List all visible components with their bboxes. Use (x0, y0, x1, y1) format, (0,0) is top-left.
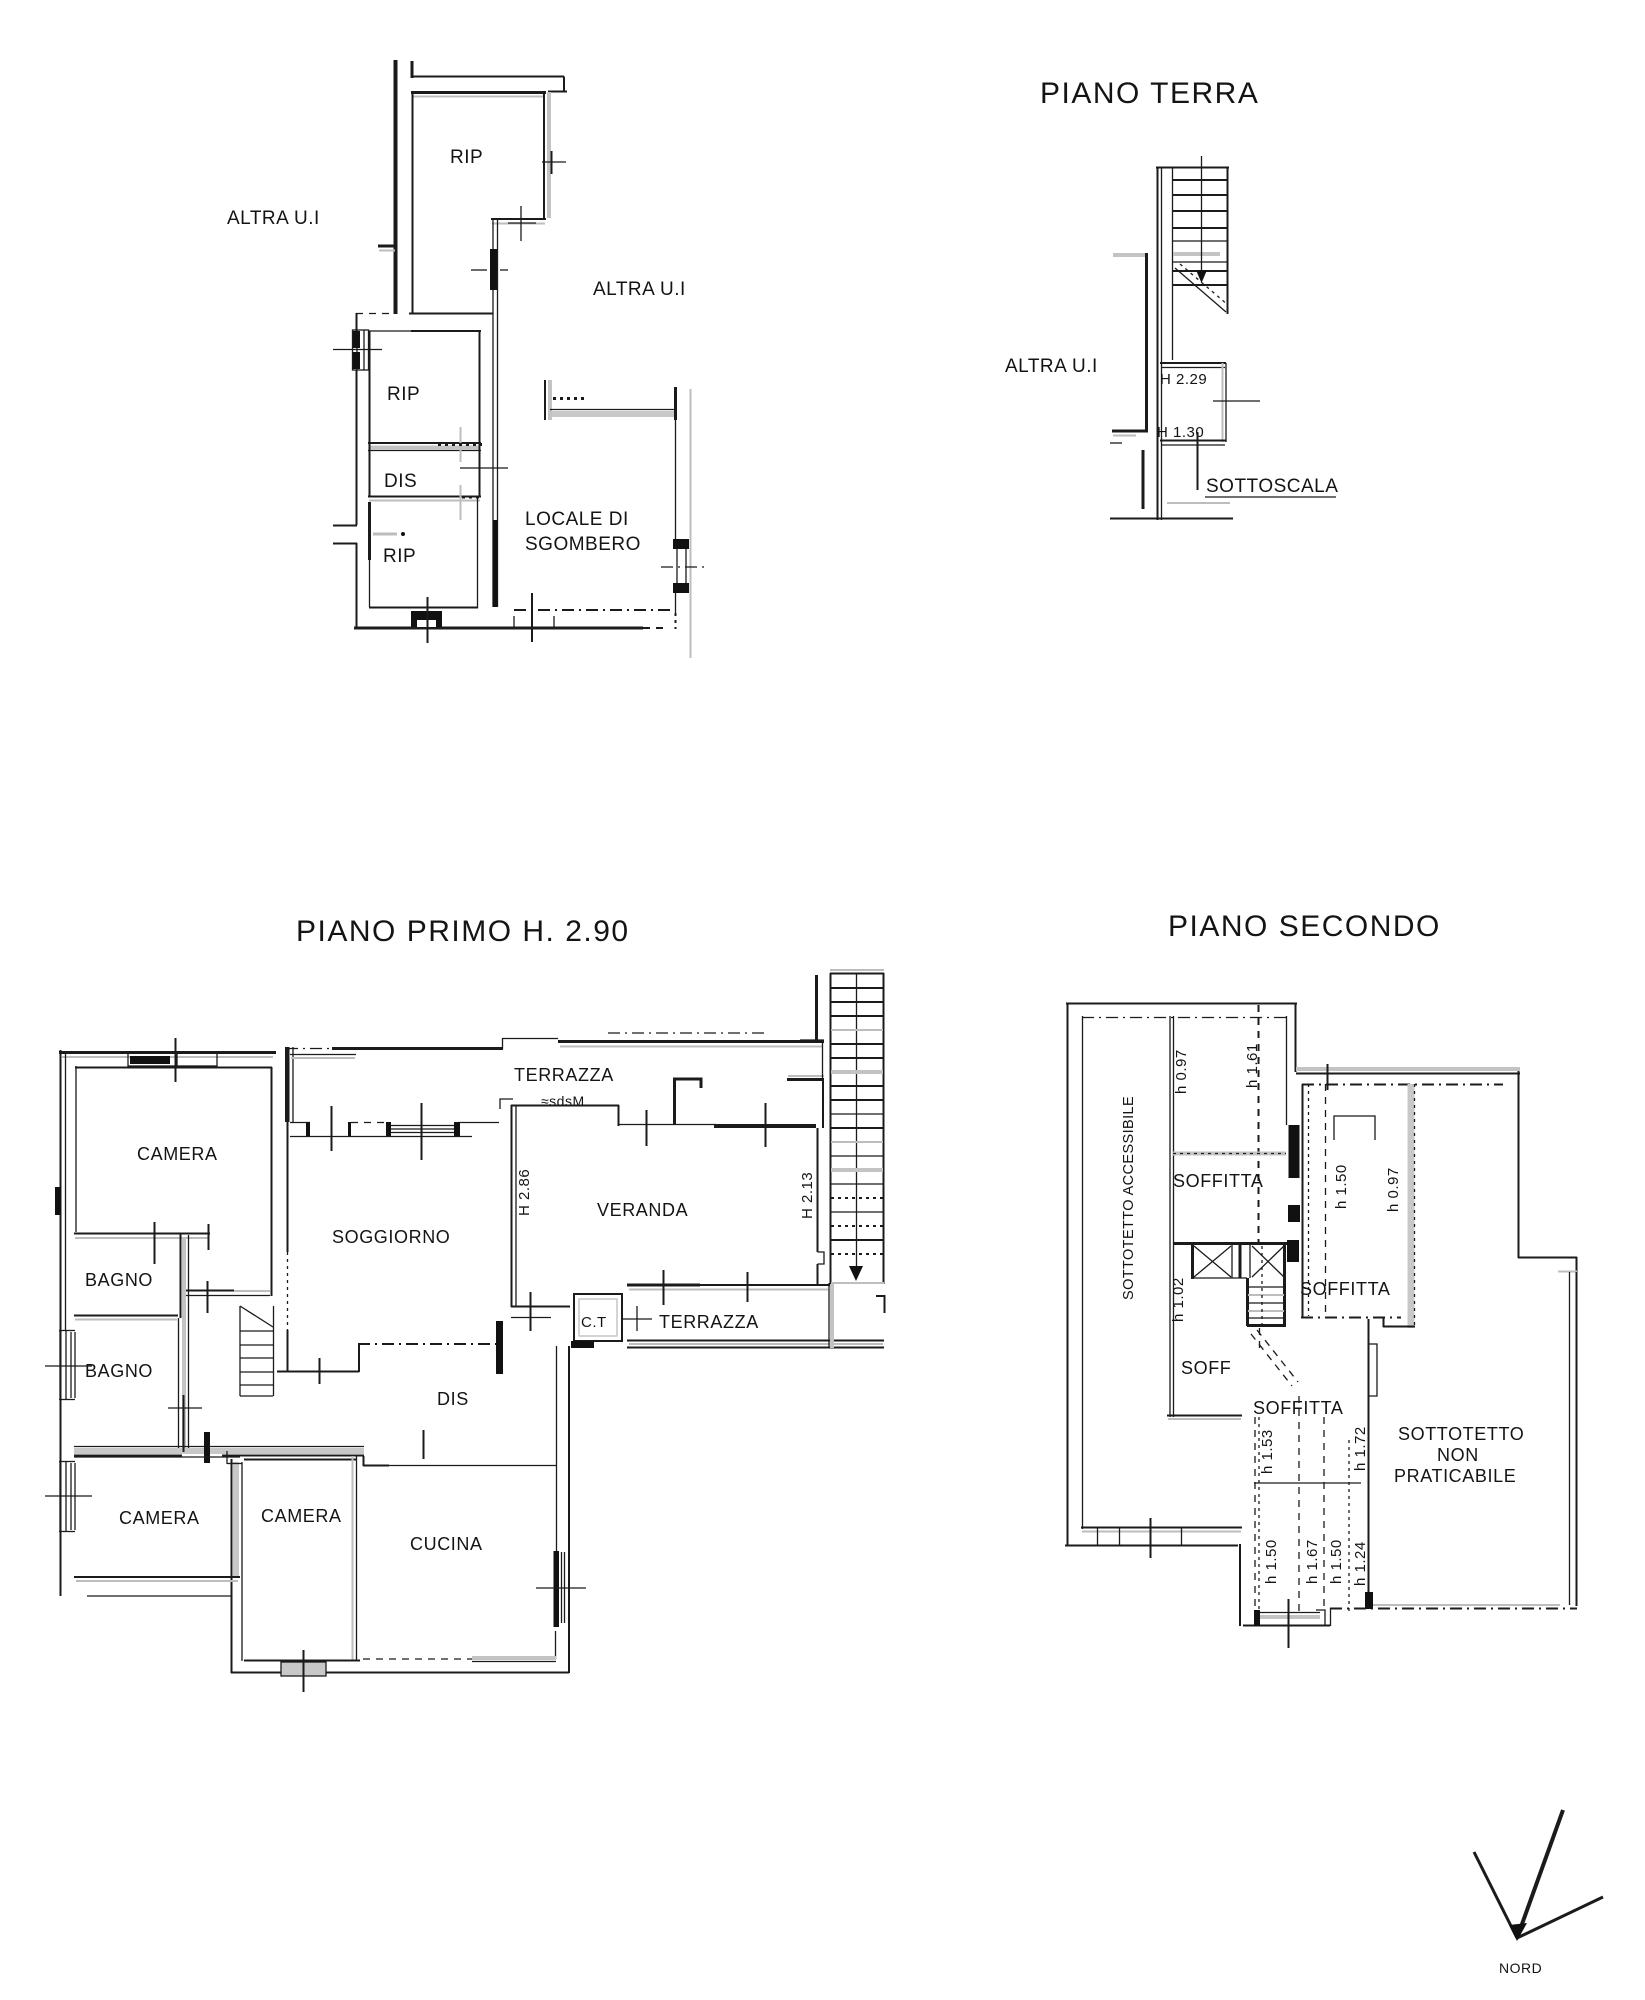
svg-text:h 1.50: h 1.50 (1333, 1164, 1350, 1209)
svg-text:CUCINA: CUCINA (410, 1534, 483, 1554)
svg-text:≈sdsM: ≈sdsM (541, 1093, 585, 1109)
svg-text:PIANO PRIMO H. 2.90: PIANO PRIMO H. 2.90 (296, 915, 630, 948)
svg-text:DIS: DIS (384, 471, 417, 492)
svg-text:h 1.67: h 1.67 (1304, 1539, 1321, 1584)
svg-text:DIS: DIS (437, 1389, 469, 1409)
svg-text:h 1.53: h 1.53 (1259, 1429, 1276, 1474)
svg-text:NORD: NORD (1499, 1960, 1542, 1976)
svg-text:ALTRA U.I: ALTRA U.I (227, 208, 320, 229)
svg-text:VERANDA: VERANDA (597, 1200, 688, 1220)
svg-text:CAMERA: CAMERA (261, 1506, 342, 1526)
svg-text:C.T: C.T (581, 1314, 607, 1331)
svg-text:SOFFITTA: SOFFITTA (1300, 1279, 1390, 1299)
svg-text:TERRAZZA: TERRAZZA (659, 1312, 759, 1332)
svg-text:PRATICABILE: PRATICABILE (1394, 1466, 1516, 1486)
svg-text:SOTTOTETTO ACCESSIBILE: SOTTOTETTO ACCESSIBILE (1121, 1096, 1137, 1300)
svg-text:SOGGIORNO: SOGGIORNO (332, 1227, 450, 1247)
svg-text:RIP: RIP (387, 384, 420, 405)
svg-text:SOFF: SOFF (1181, 1358, 1231, 1378)
svg-text:ALTRA U.I: ALTRA U.I (593, 279, 686, 300)
svg-text:h 0.97: h 0.97 (1173, 1049, 1190, 1094)
svg-text:h 1.24: h 1.24 (1352, 1541, 1369, 1586)
svg-text:ALTRA U.I: ALTRA U.I (1005, 356, 1098, 377)
svg-text:H 2.13: H 2.13 (799, 1172, 816, 1219)
svg-text:h 1.72: h 1.72 (1352, 1426, 1369, 1471)
svg-text:CAMERA: CAMERA (119, 1508, 200, 1528)
svg-text:RIP: RIP (383, 546, 416, 567)
svg-text:SOFFITTA: SOFFITTA (1253, 1398, 1343, 1418)
svg-text:h 1.50: h 1.50 (1263, 1539, 1280, 1584)
svg-text:BAGNO: BAGNO (85, 1361, 153, 1381)
svg-text:BAGNO: BAGNO (85, 1270, 153, 1290)
svg-text:h 1.02: h 1.02 (1170, 1277, 1187, 1322)
svg-text:SOFFITTA: SOFFITTA (1173, 1171, 1263, 1191)
svg-text:h 1.50: h 1.50 (1328, 1539, 1345, 1584)
svg-text:SOTTOSCALA: SOTTOSCALA (1206, 476, 1338, 497)
svg-text:SGOMBERO: SGOMBERO (525, 534, 641, 555)
svg-text:CAMERA: CAMERA (137, 1144, 218, 1164)
svg-text:TERRAZZA: TERRAZZA (514, 1065, 614, 1085)
svg-text:RIP: RIP (450, 147, 483, 168)
svg-text:LOCALE DI: LOCALE DI (525, 509, 629, 530)
svg-text:NON: NON (1437, 1445, 1479, 1465)
svg-text:H 2.29: H 2.29 (1160, 371, 1207, 388)
svg-text:PIANO SECONDO: PIANO SECONDO (1168, 910, 1441, 943)
svg-text:H 2.86: H 2.86 (516, 1169, 533, 1216)
svg-text:h 0.97: h 0.97 (1385, 1167, 1402, 1212)
svg-text:PIANO TERRA: PIANO TERRA (1040, 77, 1259, 110)
svg-text:SOTTOTETTO: SOTTOTETTO (1398, 1424, 1524, 1444)
